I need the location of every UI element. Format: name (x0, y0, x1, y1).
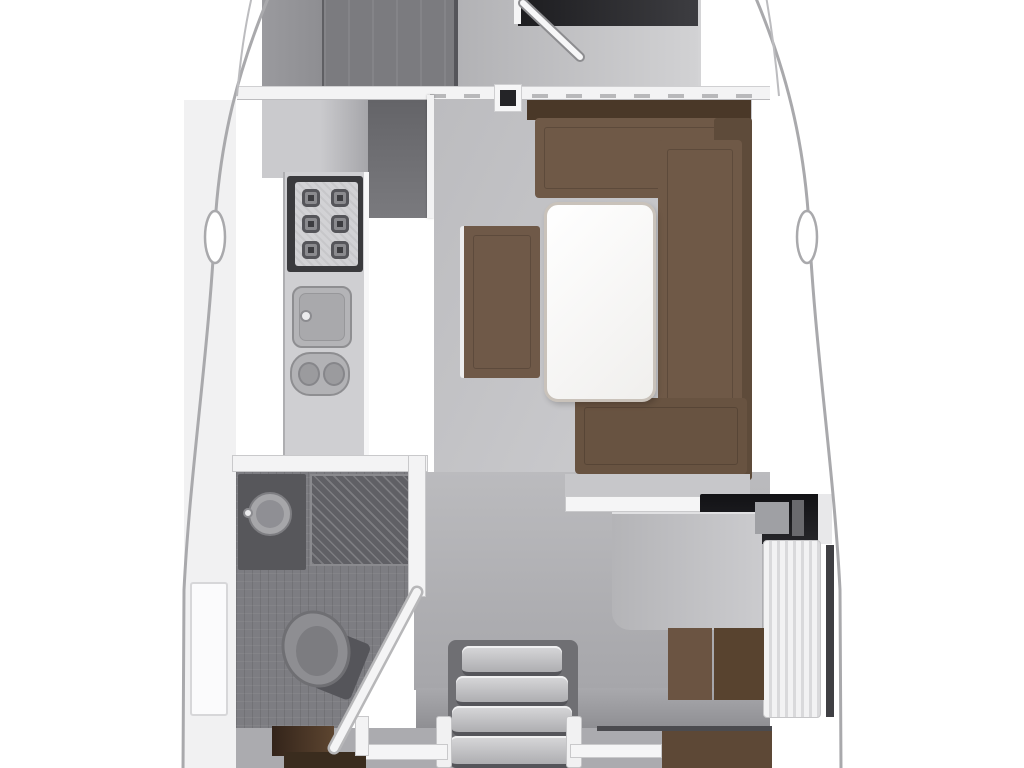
settee-right-cushion (658, 140, 742, 412)
aft-cabin-starboard-floor (662, 731, 772, 768)
burner-icon (331, 189, 349, 207)
head-partition-right (408, 455, 426, 597)
double-sink-icon (290, 352, 350, 396)
nav-station-fiddle (565, 496, 711, 512)
settee-back-shelf (527, 100, 751, 120)
bulkhead-trim (430, 94, 768, 98)
galley-tall-cabinet (368, 100, 430, 218)
door-hinge-pin (500, 90, 516, 106)
washbasin-bowl (256, 500, 284, 528)
stairs-step-1 (462, 646, 562, 676)
handrail-port (436, 716, 452, 768)
basin-faucet-icon (243, 508, 253, 518)
dining-table-icon (544, 202, 656, 402)
burner-icon (331, 215, 349, 233)
burner-icon (302, 215, 320, 233)
instrument-display (755, 502, 789, 534)
hull-liner-edge (826, 545, 834, 717)
floor-plan-canvas (0, 0, 1024, 768)
settee-bottom-cushion (575, 398, 747, 474)
sink-bowl-right (323, 362, 345, 386)
burner-icon (331, 241, 349, 259)
chart-table-icon (612, 512, 762, 630)
galley-upper-counter (262, 100, 368, 178)
faucet-icon (300, 310, 312, 322)
aft-port-post (355, 716, 369, 756)
hull-liner-port (237, 0, 252, 96)
instrument-panel-endcap (818, 494, 832, 544)
stairs-step-2 (456, 676, 568, 706)
aft-cabin-starboard-berth (668, 628, 712, 700)
forward-door-frame (514, 0, 521, 24)
sink-bowl-left (298, 362, 320, 386)
handrail-starboard (566, 716, 582, 768)
galley-partition-wall (427, 95, 434, 218)
aft-cabin-port-floor (284, 752, 366, 768)
bench-icon (460, 226, 540, 378)
forward-berth (518, 0, 698, 26)
burner-icon (302, 241, 320, 259)
forward-cabinet-panel (322, 0, 454, 86)
nav-seat-slats (763, 540, 821, 718)
cleat-icon (797, 211, 817, 263)
locker-door (190, 582, 228, 716)
aft-cabin-starboard-doorframe (570, 744, 662, 758)
instrument-switch-bank (792, 500, 804, 536)
burner-icon (302, 189, 320, 207)
toilet-seat (296, 626, 338, 676)
stairs-step-4 (450, 736, 574, 768)
shower-grate-icon (310, 474, 410, 566)
aft-cabin-port-doorframe (362, 744, 448, 760)
head-partition-top (232, 455, 428, 472)
aft-cabin-starboard-berth-edge (714, 628, 764, 700)
stairs-step-3 (452, 706, 572, 736)
forward-wardrobe-panel (262, 0, 322, 86)
hull-liner-starboard (766, 0, 779, 96)
forward-floor-edge (698, 0, 701, 86)
door-hinge-icon (494, 84, 522, 112)
